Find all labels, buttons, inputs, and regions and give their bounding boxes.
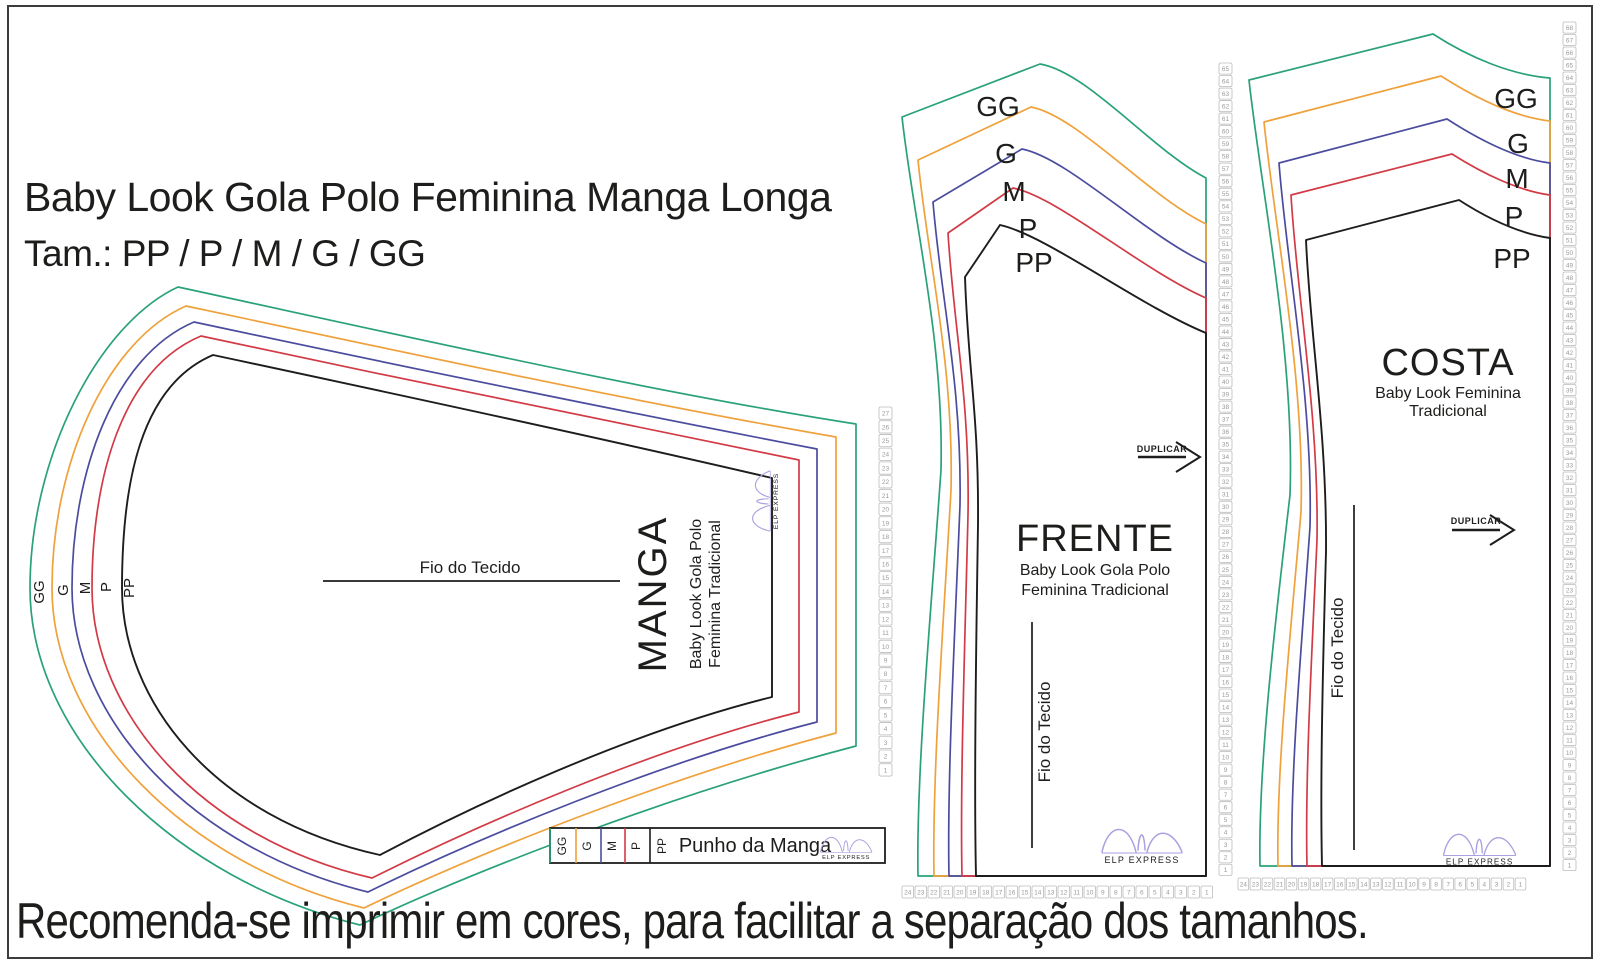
ruler-number: 67 [1566, 37, 1574, 44]
ruler-number: 20 [1222, 629, 1230, 636]
ruler-number: 22 [1264, 881, 1272, 888]
ruler-number: 10 [1222, 755, 1230, 762]
ruler-number: 12 [882, 616, 890, 623]
ruler-number: 24 [1566, 575, 1574, 582]
ruler-number: 40 [1566, 375, 1574, 382]
ruler-number: 43 [1566, 337, 1574, 344]
frente-logo [1102, 829, 1182, 865]
manga-size-label-gg: GG [31, 580, 48, 603]
ruler-number: 24 [1222, 579, 1230, 586]
frente-duplicate-label: DUPLICAR [1137, 444, 1188, 454]
ruler-number: 17 [1222, 667, 1230, 674]
frente-desc-2: Feminina Tradicional [1021, 582, 1169, 599]
ruler-number: 65 [1566, 62, 1574, 69]
ruler-right-vertical: 6867666564636261605958575655545352515049… [1563, 22, 1576, 871]
manga-size-label-g: G [55, 584, 72, 596]
ruler-number: 7 [1224, 792, 1228, 799]
ruler-number: 18 [1312, 881, 1320, 888]
ruler-number: 56 [1222, 179, 1230, 186]
ruler-number: 21 [1276, 881, 1284, 888]
ruler-number: 11 [1222, 742, 1229, 749]
ruler-number: 28 [1566, 525, 1574, 532]
ruler-number: 23 [882, 465, 890, 472]
costa-size-label-gg: GG [1494, 83, 1538, 114]
ruler-number: 14 [882, 589, 890, 596]
ruler-number: 19 [1566, 637, 1574, 644]
punho-piece: GG G M P PP Punho da Manga [550, 828, 885, 863]
ruler-number: 30 [1566, 500, 1574, 507]
ruler-number: 1 [1568, 862, 1572, 869]
punho-size-label-p: P [629, 842, 643, 850]
ruler-number: 39 [1566, 387, 1574, 394]
ruler-number: 1 [884, 767, 888, 774]
ruler-number: 60 [1566, 125, 1574, 132]
ruler-number: 54 [1566, 200, 1574, 207]
ruler-number: 2 [884, 754, 888, 761]
sheet-sizes-subtitle: Tam.: PP / P / M / G / GG [24, 227, 831, 281]
ruler-number: 21 [882, 493, 890, 500]
costa-desc-2: Tradicional [1409, 403, 1487, 420]
ruler-number: 58 [1566, 150, 1574, 157]
costa-outline-pp [1306, 200, 1550, 866]
ruler-number: 9 [1224, 767, 1228, 774]
ruler-number: 61 [1222, 116, 1230, 123]
ruler-number: 13 [1372, 881, 1380, 888]
ruler-number: 8 [1224, 780, 1228, 787]
ruler-number: 20 [1566, 625, 1574, 632]
ruler-number: 25 [1222, 567, 1230, 574]
ruler-number: 11 [1397, 881, 1404, 888]
ruler-number: 25 [882, 438, 890, 445]
ruler-number: 26 [882, 424, 890, 431]
ruler-number: 45 [1566, 312, 1574, 319]
ruler-number: 2 [1224, 855, 1228, 862]
ruler-number: 47 [1222, 291, 1230, 298]
ruler-number: 50 [1566, 250, 1574, 257]
ruler-number: 29 [1222, 517, 1230, 524]
ruler-number: 4 [1483, 881, 1487, 888]
ruler-number: 42 [1566, 350, 1574, 357]
costa-title: COSTA [1381, 342, 1514, 384]
ruler-number: 33 [1222, 467, 1230, 474]
ruler-number: 15 [1222, 692, 1230, 699]
ruler-number: 54 [1222, 204, 1230, 211]
ruler-number: 7 [1446, 881, 1450, 888]
ruler-number: 32 [1566, 475, 1574, 482]
costa-desc-1: Baby Look Feminina [1375, 385, 1521, 402]
ruler-number: 11 [882, 630, 889, 637]
ruler-number: 63 [1566, 87, 1574, 94]
ruler-number: 45 [1222, 316, 1230, 323]
sheet-title: Baby Look Gola Polo Feminina Manga Longa [24, 168, 831, 227]
punho-title: Punho da Manga [679, 835, 832, 857]
ruler-number: 53 [1566, 212, 1574, 219]
ruler-number: 31 [1222, 492, 1230, 499]
frente-title: FRENTE [1016, 518, 1174, 560]
punho-size-label-g: G [580, 841, 594, 850]
ruler-number: 28 [1222, 529, 1230, 536]
ruler-costa-horizontal: 242322212019181716151413121110987654321 [1238, 878, 1526, 890]
ruler-number: 52 [1222, 229, 1230, 236]
ruler-number: 5 [1224, 817, 1228, 824]
ruler-number: 10 [882, 644, 890, 651]
ruler-number: 55 [1222, 191, 1230, 198]
ruler-number: 20 [882, 507, 890, 514]
manga-grain-label: Fio do Tecido [420, 558, 521, 577]
ruler-number: 3 [1495, 881, 1499, 888]
ruler-number: 37 [1566, 412, 1574, 419]
ruler-number: 3 [1224, 842, 1228, 849]
ruler-number: 22 [882, 479, 890, 486]
costa-outline-g [1264, 76, 1550, 866]
ruler-number: 62 [1566, 100, 1574, 107]
costa-size-label-m: M [1505, 163, 1528, 194]
ruler-number: 7 [884, 685, 888, 692]
ruler-number: 17 [1324, 881, 1332, 888]
ruler-number: 22 [1566, 600, 1574, 607]
costa-size-label-g: G [1507, 128, 1529, 159]
ruler-number: 33 [1566, 462, 1574, 469]
ruler-number: 34 [1222, 454, 1230, 461]
ruler-number: 23 [1566, 587, 1574, 594]
ruler-number: 5 [1568, 812, 1572, 819]
costa-grain-label: Fio do Tecido [1328, 598, 1347, 699]
frente-size-label-p: P [1019, 213, 1038, 244]
ruler-number: 34 [1566, 450, 1574, 457]
punho-size-label-gg: GG [555, 837, 569, 856]
ruler-number: 14 [1360, 881, 1368, 888]
manga-desc-1: Baby Look Gola Polo [688, 519, 705, 669]
punho-size-label-pp: PP [655, 838, 669, 854]
ruler-number: 38 [1566, 400, 1574, 407]
ruler-number: 8 [884, 671, 888, 678]
ruler-number: 30 [1222, 504, 1230, 511]
ruler-number: 53 [1222, 216, 1230, 223]
ruler-number: 41 [1566, 362, 1574, 369]
ruler-number: 50 [1222, 254, 1230, 261]
ruler-number: 12 [1222, 730, 1230, 737]
ruler-number: 48 [1566, 275, 1574, 282]
ruler-number: 18 [882, 534, 890, 541]
pattern-sheet: ELP EXPRESS GG G M P PP Fio do Tecido MA… [0, 0, 1600, 967]
ruler-number: 57 [1566, 162, 1574, 169]
ruler-number: 59 [1566, 137, 1574, 144]
ruler-number: 6 [1568, 800, 1572, 807]
manga-outline-m [72, 322, 817, 892]
ruler-number: 6 [1458, 881, 1462, 888]
ruler-number: 4 [1224, 830, 1228, 837]
ruler-number: 4 [884, 726, 888, 733]
manga-size-label-p: P [98, 582, 115, 592]
ruler-number: 35 [1222, 442, 1230, 449]
costa-size-label-pp: PP [1493, 243, 1530, 274]
ruler-number: 55 [1566, 187, 1574, 194]
ruler-number: 16 [1222, 679, 1230, 686]
frente-outline-gg [902, 64, 1206, 876]
ruler-number: 15 [1348, 881, 1356, 888]
ruler-number: 49 [1222, 266, 1230, 273]
ruler-number: 27 [1566, 537, 1574, 544]
manga-desc-2: Feminina Tradicional [707, 520, 724, 668]
frente-size-label-g: G [995, 138, 1017, 169]
ruler-number: 5 [884, 712, 888, 719]
ruler-number: 14 [1566, 700, 1574, 707]
ruler-number: 26 [1222, 554, 1230, 561]
ruler-number: 18 [1222, 654, 1230, 661]
ruler-number: 42 [1222, 354, 1230, 361]
manga-size-label-m: M [77, 582, 94, 595]
ruler-number: 44 [1566, 325, 1574, 332]
ruler-number: 32 [1222, 479, 1230, 486]
ruler-number: 46 [1222, 304, 1230, 311]
ruler-number: 41 [1222, 366, 1230, 373]
ruler-number: 29 [1566, 512, 1574, 519]
ruler-number: 64 [1566, 75, 1574, 82]
ruler-number: 51 [1566, 237, 1574, 244]
costa-size-label-p: P [1505, 201, 1524, 232]
frente-size-label-gg: GG [976, 91, 1020, 122]
ruler-number: 2 [1568, 850, 1572, 857]
ruler-middle-vertical: 6564636261605958575655545352515049484746… [1219, 63, 1232, 875]
ruler-number: 18 [1566, 650, 1574, 657]
ruler-number: 23 [1252, 881, 1260, 888]
ruler-number: 27 [1222, 542, 1230, 549]
ruler-number: 23 [1222, 592, 1230, 599]
ruler-number: 64 [1222, 78, 1230, 85]
ruler-number: 37 [1222, 417, 1230, 424]
pattern-canvas: ELP EXPRESS GG G M P PP Fio do Tecido MA… [0, 0, 1600, 967]
ruler-number: 12 [1566, 725, 1574, 732]
ruler-number: 51 [1222, 241, 1230, 248]
frente-size-label-pp: PP [1015, 247, 1052, 278]
ruler-number: 6 [884, 699, 888, 706]
ruler-number: 13 [882, 603, 890, 610]
ruler-number: 15 [882, 575, 890, 582]
ruler-number: 17 [1566, 662, 1574, 669]
ruler-number: 48 [1222, 279, 1230, 286]
ruler-number: 15 [1566, 687, 1574, 694]
manga-logo [753, 471, 780, 531]
ruler-number: 21 [1222, 617, 1230, 624]
ruler-number: 46 [1566, 300, 1574, 307]
ruler-number: 40 [1222, 379, 1230, 386]
ruler-manga-vertical: 2726252423222120191817161514131211109876… [879, 407, 892, 776]
costa-logo [1444, 834, 1516, 866]
ruler-number: 1 [1224, 867, 1228, 874]
ruler-number: 68 [1566, 25, 1574, 32]
ruler-number: 49 [1566, 262, 1574, 269]
ruler-number: 38 [1222, 404, 1230, 411]
ruler-number: 52 [1566, 225, 1574, 232]
ruler-number: 8 [1568, 775, 1572, 782]
ruler-number: 66 [1566, 50, 1574, 57]
ruler-number: 36 [1566, 425, 1574, 432]
ruler-number: 57 [1222, 166, 1230, 173]
ruler-number: 12 [1384, 881, 1392, 888]
ruler-number: 1 [1519, 881, 1523, 888]
ruler-number: 58 [1222, 154, 1230, 161]
ruler-number: 2 [1507, 881, 1511, 888]
ruler-number: 14 [1222, 704, 1230, 711]
ruler-number: 8 [1434, 881, 1438, 888]
ruler-number: 63 [1222, 91, 1230, 98]
ruler-number: 24 [1240, 881, 1248, 888]
costa-piece: GG G M P PP COSTA Baby Look Feminina Tra… [1249, 34, 1550, 867]
ruler-number: 17 [882, 548, 890, 555]
ruler-number: 19 [882, 520, 890, 527]
ruler-number: 4 [1568, 825, 1572, 832]
frente-outline-g [918, 107, 1206, 876]
ruler-number: 62 [1222, 104, 1230, 111]
frente-desc-1: Baby Look Gola Polo [1020, 562, 1170, 579]
manga-size-label-pp: PP [121, 578, 138, 598]
punho-size-label-m: M [605, 841, 619, 851]
ruler-number: 47 [1566, 287, 1574, 294]
ruler-number: 27 [882, 411, 890, 418]
ruler-number: 16 [882, 561, 890, 568]
print-recommendation-note: Recomenda-se imprimir em cores, para fac… [16, 892, 1368, 950]
ruler-number: 35 [1566, 437, 1574, 444]
ruler-number: 24 [882, 452, 890, 459]
ruler-number: 20 [1288, 881, 1296, 888]
ruler-number: 16 [1336, 881, 1344, 888]
ruler-number: 59 [1222, 141, 1230, 148]
ruler-number: 60 [1222, 129, 1230, 136]
ruler-number: 13 [1566, 712, 1574, 719]
ruler-number: 9 [1422, 881, 1426, 888]
frente-piece: GG G M P PP DUPLICAR FRENTE Baby Look Go… [902, 64, 1206, 876]
ruler-number: 19 [1222, 642, 1230, 649]
sheet-header: Baby Look Gola Polo Feminina Manga Longa… [24, 168, 831, 281]
ruler-number: 44 [1222, 329, 1230, 336]
ruler-number: 3 [1568, 837, 1572, 844]
ruler-number: 22 [1222, 604, 1230, 611]
frente-size-label-m: M [1002, 176, 1025, 207]
ruler-number: 39 [1222, 391, 1230, 398]
ruler-number: 9 [884, 658, 888, 665]
ruler-number: 36 [1222, 429, 1230, 436]
ruler-number: 65 [1222, 66, 1230, 73]
ruler-number: 61 [1566, 112, 1574, 119]
ruler-number: 9 [1568, 762, 1572, 769]
ruler-number: 19 [1300, 881, 1308, 888]
ruler-number: 43 [1222, 341, 1230, 348]
ruler-number: 5 [1470, 881, 1474, 888]
ruler-number: 13 [1222, 717, 1230, 724]
ruler-number: 11 [1566, 737, 1573, 744]
ruler-number: 10 [1566, 750, 1574, 757]
ruler-number: 21 [1566, 612, 1574, 619]
ruler-number: 10 [1408, 881, 1416, 888]
ruler-number: 26 [1566, 550, 1574, 557]
ruler-number: 31 [1566, 487, 1574, 494]
ruler-number: 16 [1566, 675, 1574, 682]
ruler-number: 25 [1566, 562, 1574, 569]
ruler-number: 6 [1224, 805, 1228, 812]
ruler-number: 7 [1568, 787, 1572, 794]
ruler-number: 56 [1566, 175, 1574, 182]
ruler-number: 3 [884, 740, 888, 747]
manga-title: MANGA [631, 516, 675, 673]
frente-grain-label: Fio do Tecido [1035, 682, 1054, 783]
